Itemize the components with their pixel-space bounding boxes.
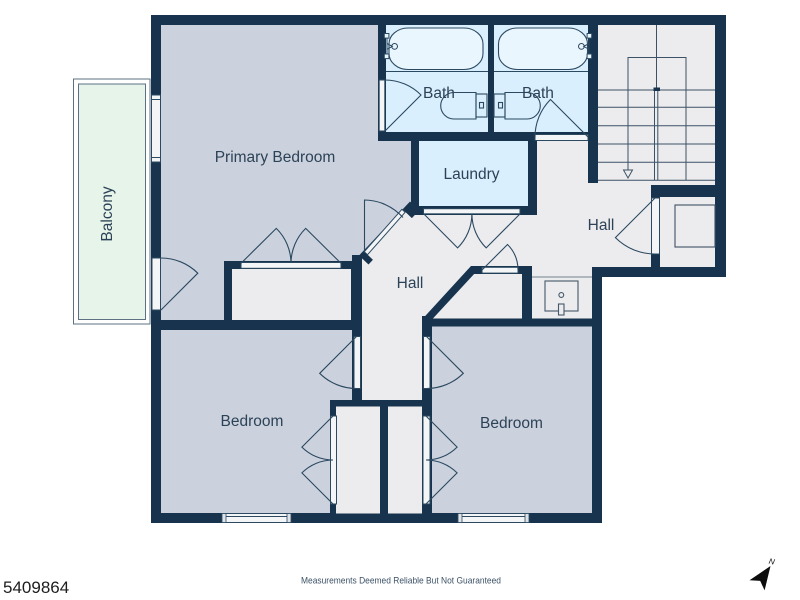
svg-text:N: N [768,557,776,567]
svg-text:Bath: Bath [423,85,455,102]
svg-text:Hall: Hall [588,217,615,234]
svg-text:Bedroom: Bedroom [221,413,284,430]
svg-text:Bath: Bath [522,85,554,102]
svg-text:Balcony: Balcony [99,186,116,241]
svg-text:Laundry: Laundry [443,166,499,183]
svg-text:Primary Bedroom: Primary Bedroom [215,149,336,166]
svg-text:Bedroom: Bedroom [480,415,543,432]
svg-text:Measurements Deemed Reliable B: Measurements Deemed Reliable But Not Gua… [301,576,501,586]
svg-text:5409864: 5409864 [3,578,69,597]
svg-text:Hall: Hall [397,275,424,292]
